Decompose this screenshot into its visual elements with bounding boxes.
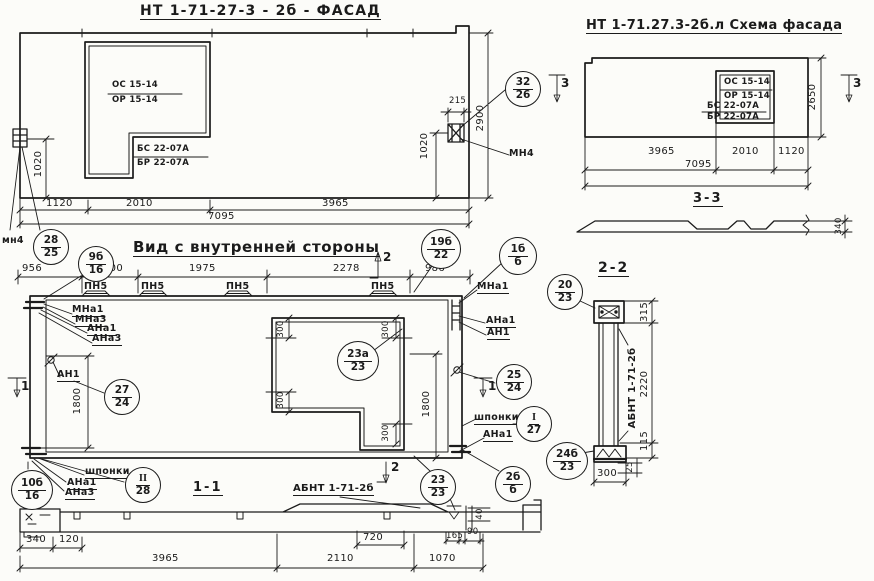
callout-25-24: 25 24 [496,364,532,400]
callout-bottom-value: 23 [556,293,575,304]
callout-top-value: 1б [508,244,529,256]
callout-bottom-value: 23 [558,462,577,473]
s22-dim-115: 115 [640,431,650,451]
callout-top-value: 23а [344,349,372,361]
callout-top-value: 2б [503,472,524,484]
scheme-title: НТ 1-71.27.3-2б.л Схема фасада [586,19,842,34]
callout-I-27: I 27 [516,406,552,442]
inner-dim-300-top-left: 300 [277,320,286,337]
s22-dim-300: 300 [597,469,617,479]
callout-bottom-value: 16 [87,265,106,276]
callout-top-value: I [529,412,539,424]
callout-top-value: 19б [427,237,455,249]
facade-dim-1020-right: 1020 [420,133,430,160]
scheme-dim-7095: 7095 [685,160,712,170]
scheme-block-series-top: БС 22-07А [707,102,759,111]
callout-1b-b: 1б б [499,237,537,275]
section-3-3-dim-340: 340 [835,217,844,234]
callout-bottom-value: б [507,485,518,496]
inner-label-pn5-1: ПН5 [84,282,107,294]
inner-label-pn5-4: ПН5 [371,282,394,294]
scheme-window-series-top: ОС 15-14 [724,78,770,87]
facade-title: НТ 1-71-27-3 - 2б - ФАСАД [140,4,381,20]
inner-label-pn5-3: ПН5 [226,282,249,294]
callout-9b-16: 9б 16 [78,246,114,282]
facade-window-series-top: ОС 15-14 [112,81,158,90]
s11-dim-90: 90 [467,528,478,537]
inner-dim-300-top-right: 300 [382,320,391,337]
inner-section-mark-1-left: 1 [21,380,30,392]
callout-23a-23: 23а 23 [337,341,379,381]
inner-label-pn5-2: ПН5 [141,282,164,294]
callout-top-value: 28 [41,235,62,247]
inner-view-title: Вид с внутренней стороны [133,240,380,257]
callout-27-24: 27 24 [104,379,140,415]
callout-top-value: 10б [18,478,46,490]
scheme-section-mark-3-left: 3 [561,77,570,89]
callout-24b-23: 24б 23 [546,442,588,480]
inner-label-ana1-right-lower: АНа1 [483,430,513,442]
scheme-dim-3965: 3965 [648,147,675,157]
facade-dim-2900: 2900 [476,105,486,132]
scheme-block-series-bottom: БР 22-07А [707,113,759,122]
callout-top-value: 32 [513,77,534,89]
callout-10b-16: 10б 16 [11,470,53,510]
s11-dim-1070: 1070 [429,554,456,564]
callout-bottom-value: 23 [349,362,368,373]
s11-dim-2110: 2110 [327,554,354,564]
callout-2b-b: 2б б [495,466,531,502]
callout-top-value: 25 [504,370,525,382]
section-1-1-beam-label: АБНТ 1-71-2б [293,484,374,496]
s11-dim-165: 165 [446,532,463,541]
scheme-dim-1120: 1120 [778,147,805,157]
facade-label-mn4-right: МН4 [509,149,534,159]
facade-dim-2010: 2010 [126,199,153,209]
facade-block-series-bottom: БР 22-07А [137,159,189,168]
facade-window-series-bottom: ОР 15-14 [112,96,158,105]
callout-23-23: 23 23 [420,469,456,505]
facade-dim-3965: 3965 [322,199,349,209]
callout-bottom-value: 24 [113,398,132,409]
section-3-3-title: 3-3 [693,192,723,207]
callout-28-25: 28 25 [33,229,69,265]
inner-label-ana1-right: АНа1 [486,316,516,328]
s22-dim-315: 315 [640,302,650,322]
inner-dim-300-bottom: 300 [382,424,391,441]
s11-dim-720: 720 [363,533,383,543]
scheme-section-mark-3-right: 3 [853,77,862,89]
inner-label-shponki-right: шпонки [474,413,519,425]
inner-dim-956: 956 [22,264,42,274]
callout-top-value: 23 [428,475,449,487]
callout-bottom-value: 23 [429,488,448,499]
facade-dim-1120: 1120 [46,199,73,209]
inner-dim-1800-left: 1800 [73,388,83,415]
section-2-2-title: 2-2 [598,261,629,277]
inner-label-an1-right: АН1 [487,328,510,340]
inner-dim-1800-right: 1800 [422,391,432,418]
callout-bottom-value: б [512,257,523,268]
inner-label-ana3-bottom: АНа3 [65,488,95,500]
drawing-sheet: НТ 1-71-27-3 - 2б - ФАСАД ОС 15-14 ОР 15… [0,0,874,581]
s11-dim-340: 340 [26,535,46,545]
inner-label-ana3-left: АНа3 [92,334,122,346]
facade-label-mn4-left: мн4 [2,236,24,246]
inner-dim-2278: 2278 [333,264,360,274]
inner-label-an1-left: АН1 [57,370,80,382]
facade-dim-1020-left: 1020 [34,151,44,178]
scheme-dim-2010: 2010 [732,147,759,157]
callout-top-value: II [136,473,150,485]
facade-dim-215: 215 [449,97,466,106]
s22-dim-2220: 2220 [640,371,650,398]
callout-20-23: 20 23 [547,274,583,310]
s11-dim-3965: 3965 [152,554,179,564]
callout-bottom-value: 16 [23,491,42,502]
s11-dim-40: 40 [476,508,485,519]
facade-block-series-top: БС 22-07А [137,145,189,154]
section-mark-2-bottom: 2 [391,461,400,473]
scheme-window-series-bottom: ОР 15-14 [724,92,770,101]
callout-bottom-value: 27 [525,425,544,436]
inner-dim-1975: 1975 [189,264,216,274]
inner-dim-300-mid-left: 300 [277,391,286,408]
callout-II-28: II 28 [125,467,161,503]
callout-bottom-value: 22 [432,250,451,261]
inner-label-mna1-right: МНа1 [477,282,509,294]
facade-dim-7095: 7095 [208,212,235,222]
callout-top-value: 27 [112,385,133,397]
callout-top-value: 9б [86,252,107,264]
scheme-dim-2650: 2650 [808,84,818,111]
callout-bottom-value: 25 [42,248,61,259]
callout-top-value: 24б [553,449,581,461]
callout-bottom-value: 26 [514,90,533,101]
inner-section-mark-2-top: 2 [383,251,392,263]
callout-bottom-value: 24 [505,383,524,394]
section-1-1-title: 1-1 [193,481,223,496]
callout-top-value: 20 [555,280,576,292]
callout-bottom-value: 28 [134,486,153,497]
callout-19b-22: 19б 22 [421,229,461,269]
section-2-2-beam-label: АБНТ 1-71-2б [628,348,638,429]
s22-dim-25: 25 [626,461,635,472]
s11-dim-120: 120 [59,535,79,545]
callout-32-26: 32 26 [505,71,541,107]
